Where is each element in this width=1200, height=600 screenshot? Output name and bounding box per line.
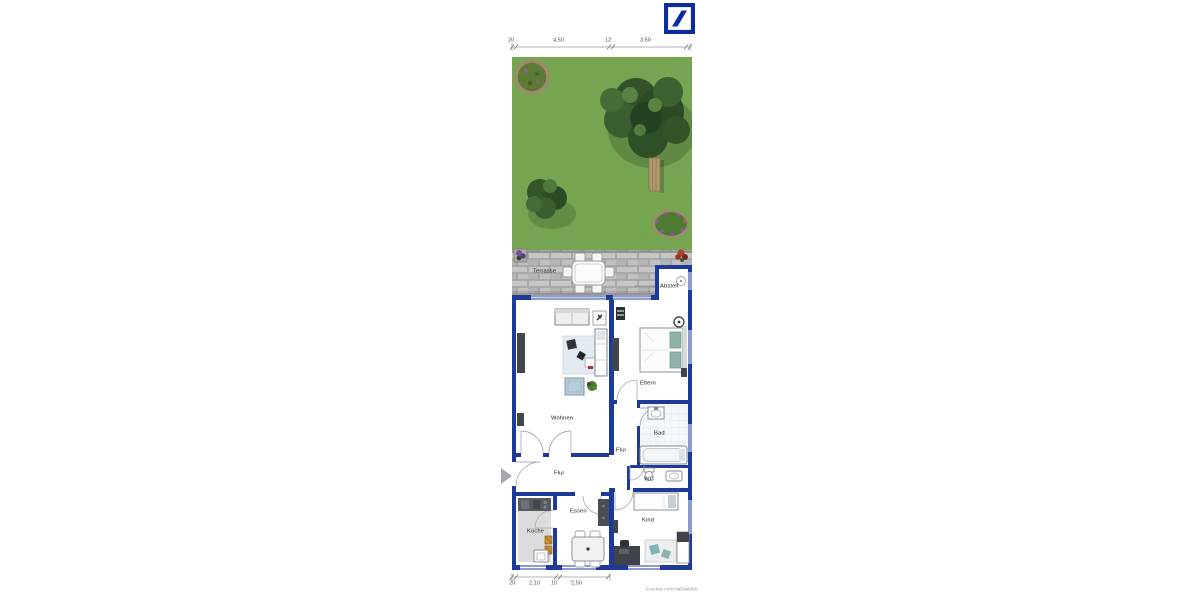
building — [512, 265, 692, 570]
dim-top-450: 4,50 — [553, 37, 564, 43]
room-label-kueche: Küche — [527, 528, 544, 534]
scale-disclaimer: Grundriss nicht maßstäblich — [645, 587, 697, 592]
daybed — [595, 329, 607, 376]
room-label-eltern: Eltern — [640, 380, 656, 386]
room-label-kind: Kind — [642, 517, 654, 523]
room-label-terrasse: Terrasse — [533, 268, 556, 274]
dimension-line-top — [510, 43, 692, 51]
dim-bottom-10: 10 — [551, 580, 557, 586]
room-label-flur-right: Flur — [616, 447, 626, 453]
window-eltern-right — [688, 330, 692, 364]
side-table — [593, 311, 606, 325]
plant — [587, 381, 597, 391]
highboard — [598, 499, 609, 526]
garden-bench — [649, 158, 664, 193]
nightstand — [681, 368, 687, 377]
room-label-flur-left: Flur — [554, 470, 564, 476]
entrance-opening — [512, 462, 516, 486]
wc-sink — [666, 471, 682, 481]
window-bad-right — [688, 424, 692, 452]
room-label-wc: WC — [644, 476, 654, 482]
window-kueche-bottom — [520, 565, 546, 570]
dim-top-12: 12 — [605, 37, 611, 43]
tv-board — [517, 333, 525, 373]
window-kind-bottom — [628, 565, 660, 570]
flower-bed-bottom-right — [654, 211, 688, 237]
dim-bottom-20: 20 — [509, 580, 515, 586]
kind-wardrobe — [677, 532, 689, 563]
double-bed — [640, 326, 687, 374]
radiator-kind — [613, 520, 618, 533]
bathroom-sink — [648, 407, 664, 419]
flower-bed-top-left — [516, 61, 548, 93]
window-eltern-top — [613, 295, 651, 300]
dim-top-20: 20 — [508, 37, 514, 43]
bathtub — [640, 446, 687, 464]
sofa — [555, 309, 589, 325]
kind-bed — [634, 493, 678, 510]
play-mat — [645, 540, 676, 562]
room-label-wohnen: Wohnen — [551, 415, 573, 421]
kitchen-counter — [518, 498, 551, 511]
floorplan-page: 20 4,50 12 3,50 Terrasse Abstell Wohnen … — [0, 0, 1200, 600]
kitchen-sink — [534, 550, 548, 562]
radiator-eltern — [616, 307, 625, 320]
room-label-abstell: Abstell — [660, 283, 678, 289]
entrance-arrow-icon — [501, 468, 512, 484]
rug — [563, 336, 599, 374]
window-terrace-door — [531, 295, 606, 300]
square-table — [565, 378, 584, 395]
window-abstell-right — [688, 272, 692, 290]
room-label-essen: Essen — [570, 508, 587, 514]
garden — [512, 57, 696, 250]
window-kind-right — [688, 500, 692, 534]
dimension-line-bottom — [510, 573, 610, 581]
ceiling-lamp — [674, 317, 684, 327]
shelf — [517, 413, 524, 426]
dim-bottom-250: 2,50 — [571, 580, 582, 586]
dim-bottom-210: 2,10 — [529, 580, 540, 586]
potted-plant-purple — [514, 249, 527, 262]
wardrobe-eltern — [612, 338, 619, 371]
room-label-bad: Bad — [654, 430, 665, 436]
dim-top-350: 3,50 — [640, 37, 651, 43]
